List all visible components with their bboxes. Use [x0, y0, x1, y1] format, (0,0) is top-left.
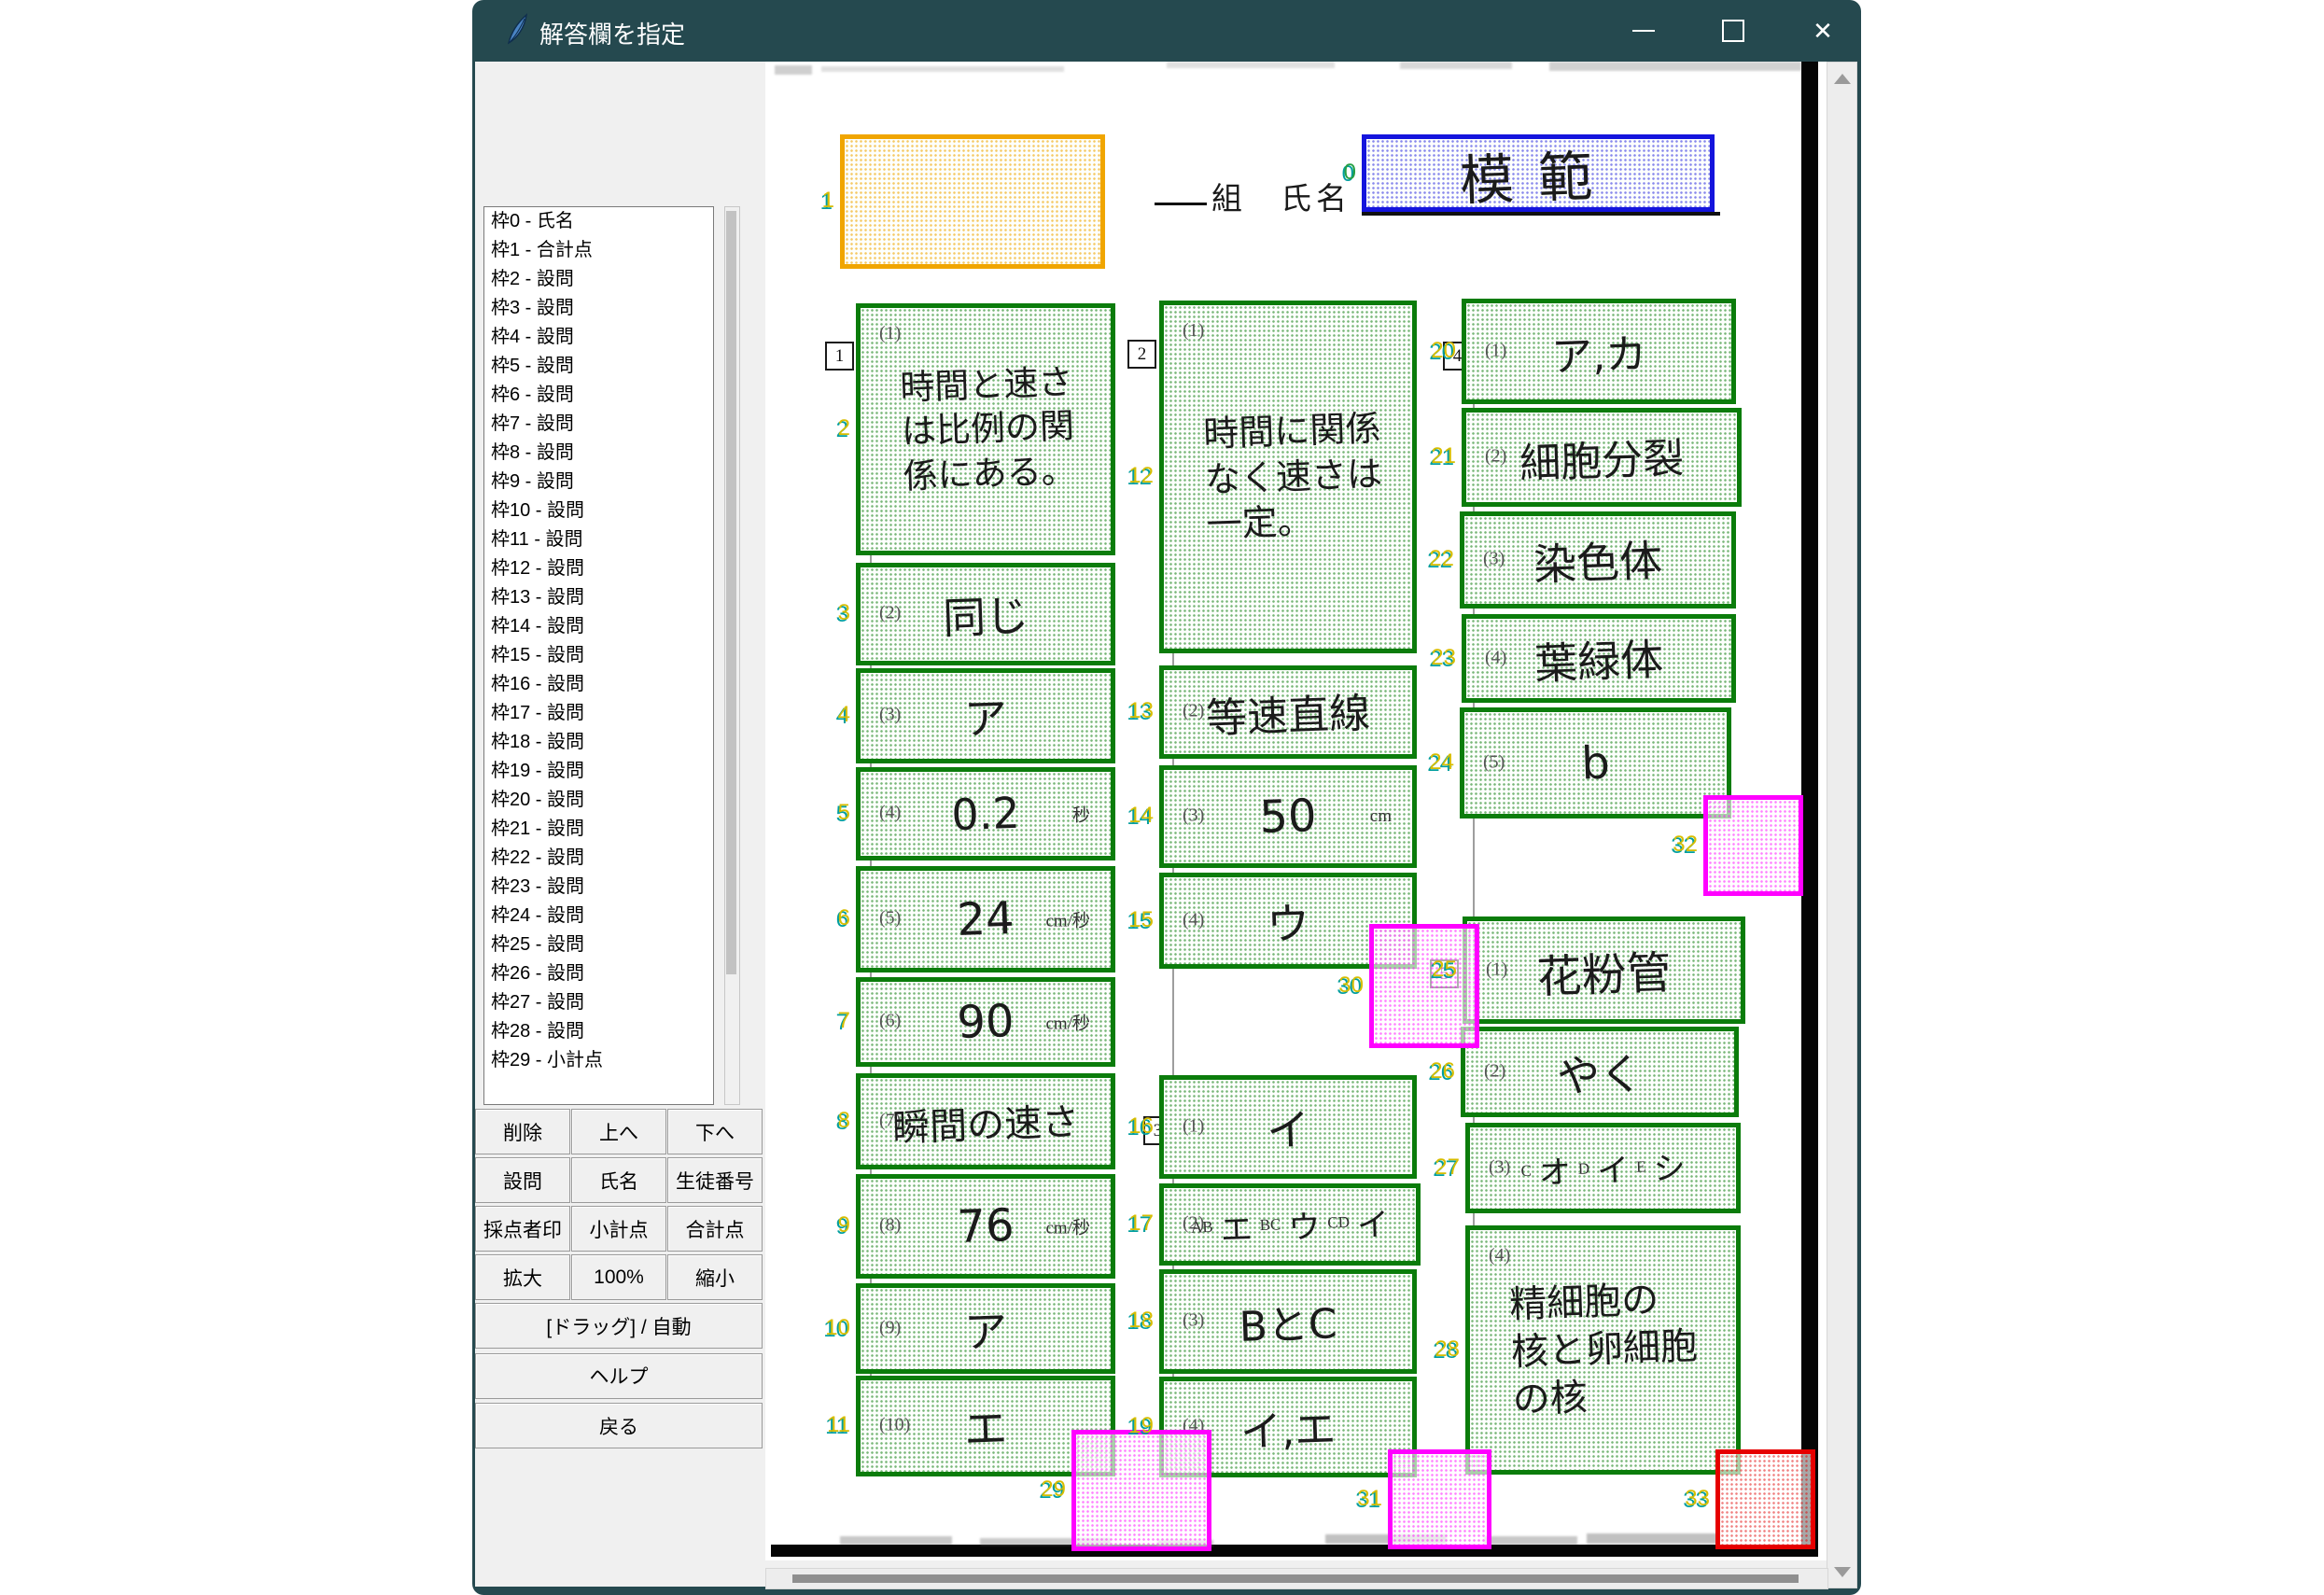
handwritten-answer: 精細胞の核と卵細胞の核	[1466, 1225, 1741, 1475]
frame-number-label-18: 18	[1122, 1308, 1154, 1334]
frame-number-label-30: 30	[1332, 972, 1364, 999]
frame-list-item-12[interactable]: 枠12 - 設問	[484, 554, 713, 583]
handwritten-answer	[1706, 798, 1799, 892]
button-小計点[interactable]: 小計点	[571, 1206, 666, 1252]
frame-list-item-24[interactable]: 枠24 - 設問	[484, 902, 713, 930]
frame-list-item-7[interactable]: 枠7 - 設問	[484, 410, 713, 439]
frame-list-item-26[interactable]: 枠26 - 設問	[484, 959, 713, 988]
answer-unit-label: cm/秒	[1046, 1214, 1091, 1239]
frame-number-label-5: 5	[819, 800, 850, 826]
handwritten-answer: b	[1463, 707, 1729, 818]
button-wide-2[interactable]: 戻る	[475, 1403, 763, 1448]
button-氏名[interactable]: 氏名	[571, 1157, 666, 1203]
frame-number-label-31: 31	[1351, 1486, 1382, 1512]
frame-number-label-4: 4	[819, 702, 850, 728]
answer-box-17[interactable]: (2)ABエBCウCDイ	[1159, 1183, 1421, 1266]
handwritten-answer: CオDイEシ	[1469, 1123, 1738, 1213]
frame-list-item-15[interactable]: 枠15 - 設問	[484, 641, 713, 670]
page-edge-right	[1801, 62, 1818, 1557]
answer-box-8[interactable]: (7)瞬間の速さ	[856, 1073, 1115, 1169]
listbox-scrollbar[interactable]	[724, 206, 740, 1105]
answer-unit-label: cm/秒	[1046, 907, 1091, 932]
frame-number-label-15: 15	[1122, 907, 1154, 933]
answer-box-27[interactable]: (3)CオDイEシ	[1465, 1123, 1741, 1213]
frame-list-item-23[interactable]: 枠23 - 設問	[484, 873, 713, 902]
frame-list-item-9[interactable]: 枠9 - 設問	[484, 468, 713, 497]
answer-unit-label: 秒	[1072, 802, 1090, 827]
tk-feather-icon	[506, 13, 530, 45]
button-拡大[interactable]: 拡大	[475, 1254, 570, 1300]
frame-number-label-9: 9	[819, 1212, 850, 1238]
frame-list-item-16[interactable]: 枠16 - 設問	[484, 670, 713, 699]
frame-number-label-25: 25	[1425, 957, 1457, 983]
frame-number-label-21: 21	[1424, 443, 1456, 469]
frame-list-item-27[interactable]: 枠27 - 設問	[484, 988, 713, 1017]
handwritten-answer: 同じ	[859, 563, 1112, 665]
question-marker-1: 1	[825, 342, 854, 371]
handwritten-answer: イ	[1162, 1075, 1413, 1178]
handwritten-answer: 葉緑体	[1465, 614, 1733, 703]
page-edge-bottom	[771, 1545, 1818, 1557]
button-上へ[interactable]: 上へ	[571, 1109, 666, 1154]
answer-box-28[interactable]: (4)精細胞の核と卵細胞の核	[1465, 1225, 1741, 1475]
frame-list-item-3[interactable]: 枠3 - 設問	[484, 294, 713, 323]
frame-list-item-11[interactable]: 枠11 - 設問	[484, 525, 713, 554]
frame-list-item-6[interactable]: 枠6 - 設問	[484, 381, 713, 410]
frame-number-label-7: 7	[819, 1008, 850, 1034]
handwritten-answer: 時間と速さは比例の関係にある。	[857, 303, 1115, 554]
frame-number-label-20: 20	[1424, 338, 1456, 364]
handwritten-answer	[1074, 1433, 1209, 1549]
answer-box-7[interactable]: (6)90cm/秒	[856, 977, 1115, 1067]
frame-number-label-2: 2	[819, 415, 850, 441]
name-underline	[1362, 212, 1720, 216]
frame-list-item-14[interactable]: 枠14 - 設問	[484, 612, 713, 641]
frame-number-label-19: 19	[1122, 1413, 1154, 1439]
button-縮小[interactable]: 縮小	[667, 1254, 763, 1300]
answer-box-22[interactable]: (3)染色体	[1460, 511, 1736, 609]
frame-list-item-29[interactable]: 枠29 - 小計点	[484, 1046, 713, 1075]
handwritten-answer	[1718, 1452, 1812, 1546]
answer-box-18[interactable]: (3)BとC	[1159, 1269, 1417, 1374]
frame-number-label-0: 0	[1324, 160, 1356, 186]
handwritten-answer: 瞬間の速さ	[859, 1073, 1112, 1168]
answer-box-25[interactable]: (1)花粉管	[1463, 916, 1745, 1024]
sheet-canvas[interactable]: 組 氏名 12345模範01(1)時間と速さは比例の関係にある。2(2)同じ3(…	[765, 62, 1827, 1560]
handwritten-answer: 染色体	[1463, 511, 1732, 609]
answer-box-30[interactable]	[1369, 924, 1479, 1048]
handwritten-answer	[1372, 927, 1477, 1045]
answer-box-14[interactable]: (3)50cm	[1159, 765, 1417, 868]
window-title: 解答欄を指定	[539, 16, 685, 50]
answer-box-9[interactable]: (8)76cm/秒	[856, 1174, 1115, 1279]
frame-list-item-21[interactable]: 枠21 - 設問	[484, 815, 713, 844]
frame-list-item-5[interactable]: 枠5 - 設問	[484, 352, 713, 381]
answer-box-12[interactable]: (1)時間に関係なく速さは一定。	[1159, 301, 1417, 653]
handwritten-answer: やく	[1464, 1027, 1736, 1117]
frame-number-label-27: 27	[1428, 1154, 1460, 1181]
frame-number-label-23: 23	[1424, 645, 1456, 671]
scroll-up-arrow[interactable]	[1834, 74, 1851, 84]
button-削除[interactable]: 削除	[475, 1109, 570, 1154]
frame-number-label-22: 22	[1422, 546, 1454, 572]
answer-box-5[interactable]: (4)0.2秒	[856, 767, 1115, 860]
frame-number-label-14: 14	[1122, 803, 1154, 829]
handwritten-answer: ア	[859, 668, 1112, 763]
answer-box-3[interactable]: (2)同じ	[856, 563, 1115, 665]
maximize-button[interactable]	[1691, 0, 1775, 62]
answer-box-32[interactable]	[1703, 795, 1803, 896]
answer-box-26[interactable]: (2)やく	[1461, 1027, 1739, 1117]
canvas-vscrollbar[interactable]	[1827, 62, 1857, 1588]
handwritten-answer: BとC	[1162, 1269, 1413, 1373]
class-label: 組	[1211, 174, 1242, 218]
frame-number-label-1: 1	[803, 188, 834, 214]
button-100%[interactable]: 100%	[571, 1254, 666, 1300]
screenshot-root: 解答欄を指定 ✕ 枠0 - 氏名枠1 - 合計点枠2 - 設問枠3 - 設問枠4…	[0, 0, 2324, 1595]
answer-unit-label: cm	[1370, 806, 1392, 827]
frame-list-item-20[interactable]: 枠20 - 設問	[484, 786, 713, 815]
frame-number-label-13: 13	[1122, 698, 1154, 724]
frame-number-label-10: 10	[819, 1315, 850, 1341]
button-設問[interactable]: 設問	[475, 1157, 570, 1203]
button-wide-1[interactable]: ヘルプ	[475, 1353, 763, 1399]
frame-list-item-10[interactable]: 枠10 - 設問	[484, 497, 713, 525]
button-生徒番号[interactable]: 生徒番号	[667, 1157, 763, 1203]
button-wide-0[interactable]: [ドラッグ] / 自動	[475, 1303, 763, 1349]
frame-list-item-0[interactable]: 枠0 - 氏名	[484, 207, 713, 236]
handwritten-answer: 細胞分裂	[1464, 408, 1738, 507]
frame-number-label-33: 33	[1678, 1486, 1710, 1512]
answer-box-24[interactable]: (5)b	[1460, 707, 1731, 818]
frame-list-item-2[interactable]: 枠2 - 設問	[484, 265, 713, 294]
class-underscore	[1155, 203, 1207, 205]
frame-number-label-16: 16	[1122, 1113, 1154, 1140]
listbox-scrollbar-thumb[interactable]	[726, 211, 736, 974]
title-bar[interactable]: 解答欄を指定 ✕	[472, 0, 1861, 62]
handwritten-answer	[1391, 1452, 1488, 1546]
answer-box-4[interactable]: (3)ア	[856, 668, 1115, 763]
frame-list-item-28[interactable]: 枠28 - 設問	[484, 1017, 713, 1046]
handwritten-answer: ア	[860, 1283, 1113, 1373]
frame-number-label-32: 32	[1666, 832, 1698, 858]
answer-box-0[interactable]: 模範	[1362, 134, 1715, 212]
handwritten-answer: 時間に関係なく速さは一定。	[1158, 301, 1419, 652]
frame-list-item-25[interactable]: 枠25 - 設問	[484, 930, 713, 959]
canvas-hscrollbar[interactable]	[765, 1568, 1828, 1589]
frame-number-label-3: 3	[819, 600, 850, 626]
question-marker-2: 2	[1127, 340, 1156, 369]
frame-list-item-4[interactable]: 枠4 - 設問	[484, 323, 713, 352]
answer-box-31[interactable]	[1388, 1449, 1491, 1549]
button-採点者印[interactable]: 採点者印	[475, 1206, 570, 1252]
scroll-down-arrow[interactable]	[1834, 1567, 1851, 1577]
handwritten-answer: ABエBCウCDイ	[1163, 1183, 1418, 1265]
answer-box-6[interactable]: (5)24cm/秒	[856, 866, 1115, 972]
answer-unit-label: cm/秒	[1046, 1010, 1091, 1035]
frame-number-label-26: 26	[1423, 1058, 1455, 1084]
frame-listbox[interactable]: 枠0 - 氏名枠1 - 合計点枠2 - 設問枠3 - 設問枠4 - 設問枠5 -…	[483, 206, 714, 1105]
frame-list-item-22[interactable]: 枠22 - 設問	[484, 844, 713, 873]
minimize-button[interactable]	[1602, 0, 1686, 62]
handwritten-answer: 等速直線	[1163, 665, 1414, 758]
frame-list-item-17[interactable]: 枠17 - 設問	[484, 699, 713, 728]
close-button[interactable]: ✕	[1781, 0, 1865, 62]
answer-box-21[interactable]: (2)細胞分裂	[1462, 408, 1742, 507]
frame-list-item-19[interactable]: 枠19 - 設問	[484, 757, 713, 786]
answer-box-13[interactable]: (2)等速直線	[1159, 665, 1417, 759]
frame-number-label-11: 11	[819, 1412, 850, 1438]
answer-box-20[interactable]: (1)ア,カ	[1462, 299, 1736, 404]
frame-number-label-24: 24	[1422, 749, 1454, 776]
frame-number-label-12: 12	[1122, 463, 1154, 489]
frame-list-item-18[interactable]: 枠18 - 設問	[484, 728, 713, 757]
answer-box-29[interactable]	[1071, 1430, 1211, 1551]
frame-list-item-8[interactable]: 枠8 - 設問	[484, 439, 713, 468]
answer-box-23[interactable]: (4)葉緑体	[1462, 614, 1736, 703]
frame-number-label-8: 8	[819, 1108, 850, 1134]
frame-list-item-1[interactable]: 枠1 - 合計点	[484, 236, 713, 265]
answer-box-1[interactable]	[840, 134, 1105, 269]
handwritten-answer	[843, 134, 1103, 268]
handwritten-answer: 模範	[1365, 133, 1711, 214]
answer-box-16[interactable]: (1)イ	[1159, 1075, 1417, 1179]
handwritten-answer: ア,カ	[1464, 299, 1732, 404]
hscrollbar-thumb[interactable]	[792, 1574, 1799, 1583]
frame-number-label-17: 17	[1122, 1210, 1154, 1237]
button-下へ[interactable]: 下へ	[667, 1109, 763, 1154]
button-合計点[interactable]: 合計点	[667, 1206, 763, 1252]
frame-number-label-28: 28	[1428, 1336, 1460, 1363]
answer-box-10[interactable]: (9)ア	[856, 1283, 1115, 1374]
handwritten-answer: 花粉管	[1465, 916, 1742, 1024]
frame-number-label-6: 6	[819, 905, 850, 931]
answer-box-2[interactable]: (1)時間と速さは比例の関係にある。	[856, 303, 1115, 555]
answer-box-33[interactable]	[1715, 1449, 1815, 1549]
frame-number-label-29: 29	[1034, 1476, 1066, 1503]
frame-list-item-13[interactable]: 枠13 - 設問	[484, 583, 713, 612]
